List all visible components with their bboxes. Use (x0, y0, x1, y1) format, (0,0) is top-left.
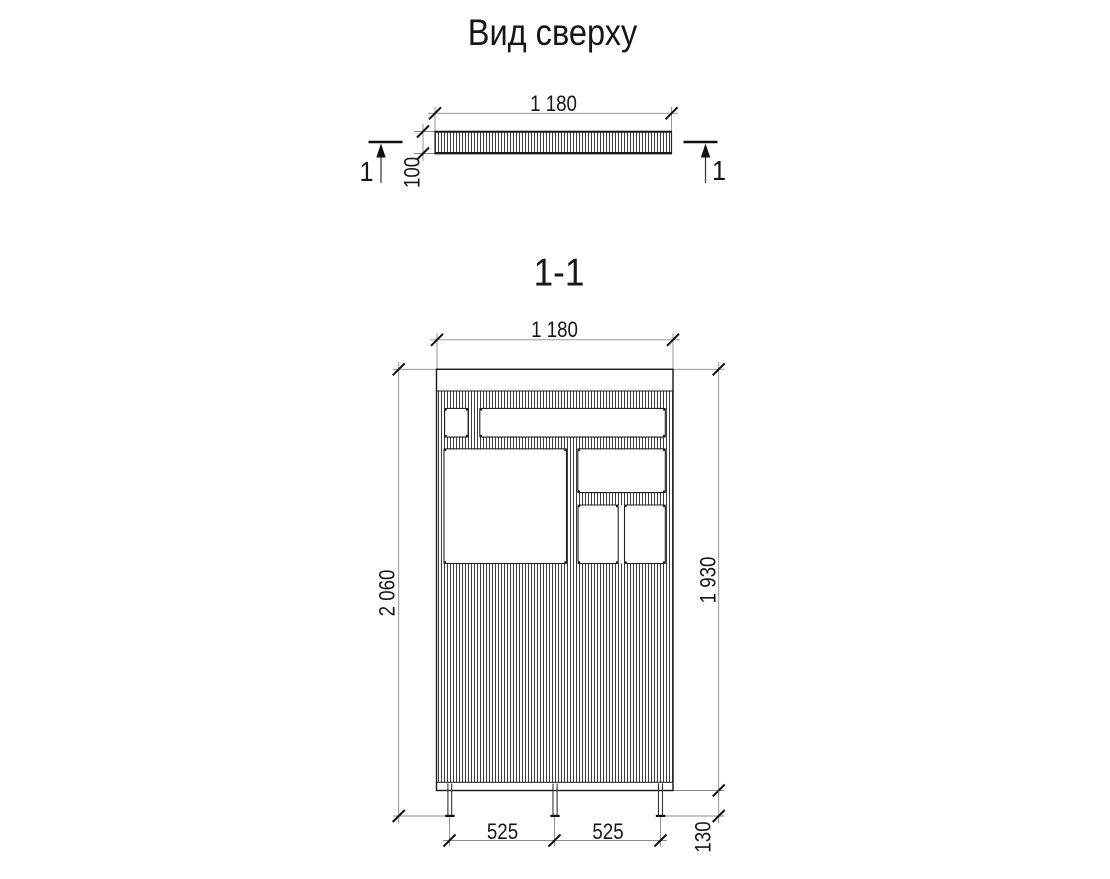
svg-text:525: 525 (487, 819, 518, 844)
svg-text:525: 525 (592, 819, 623, 844)
svg-text:1 180: 1 180 (530, 92, 577, 117)
svg-text:2 060: 2 060 (375, 570, 400, 617)
svg-text:1 930: 1 930 (696, 557, 721, 604)
svg-text:1: 1 (359, 156, 373, 188)
svg-text:1-1: 1-1 (534, 250, 585, 294)
svg-text:Вид сверху: Вид сверху (468, 12, 638, 53)
svg-text:1: 1 (712, 155, 726, 187)
svg-text:1 180: 1 180 (531, 317, 578, 342)
svg-text:100: 100 (400, 157, 425, 188)
svg-text:130: 130 (691, 821, 716, 852)
